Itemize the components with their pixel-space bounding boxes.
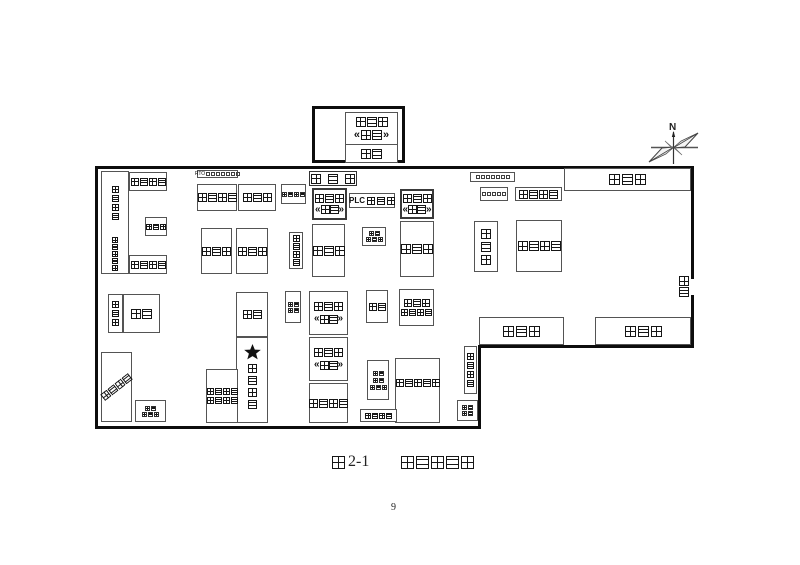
svg-text:N: N: [669, 122, 676, 133]
